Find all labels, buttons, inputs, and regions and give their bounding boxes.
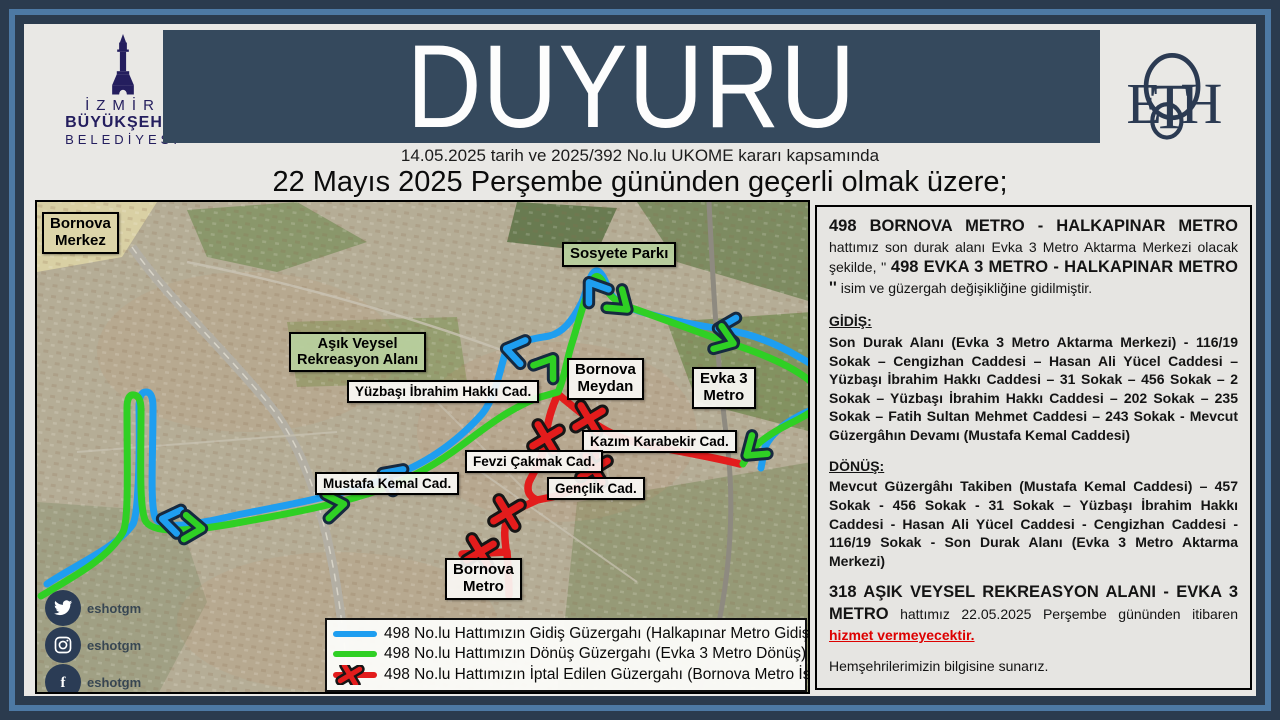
map-label-evka3-metro: Evka 3 Metro [692, 367, 756, 409]
line-318-text: hattımız 22.05.2025 Perşembe gününden it… [889, 606, 1238, 622]
line-498-old-name: 498 BORNOVA METRO - HALKAPINAR METRO [829, 217, 1238, 235]
map-label-bornova-metro: Bornova Metro [445, 558, 522, 600]
map-label-bornova-meydan: Bornova Meydan [567, 358, 644, 400]
clock-tower-icon [97, 34, 149, 96]
social-instagram[interactable]: eshotgm [45, 627, 141, 663]
decision-date-line: 14.05.2025 tarih ve 2025/392 No.lu UKOME… [24, 146, 1256, 166]
announcement-text-panel: 498 BORNOVA METRO - HALKAPINAR METRO hat… [815, 205, 1252, 690]
twitter-handle: eshotgm [87, 601, 141, 616]
svg-text:T: T [1150, 71, 1189, 142]
route-change-text-2: isim ve güzergah değişikliğine gidilmişt… [837, 280, 1092, 296]
map-label-asik-veysel: Aşık Veysel Rekreasyon Alanı [289, 332, 426, 372]
closing-line: Hemşehrilerimizin bilgisine sunarız. [829, 657, 1238, 676]
map-label-mustafa-kemal: Mustafa Kemal Cad. [315, 472, 459, 495]
map-label-sosyete-parki: Sosyete Parkı [562, 242, 676, 267]
instagram-handle: eshotgm [87, 638, 141, 653]
service-discontinued-warning: hizmet vermeyecektir. [829, 627, 975, 643]
legend-row-gidis: 498 No.lu Hattımızın Gidiş Güzergahı (Ha… [333, 625, 799, 643]
announcement-poster: İZMİR BÜYÜKŞEHİR BELEDİYESİ DUYURU E H T… [0, 0, 1280, 720]
route-map: Bornova Merkez Sosyete Parkı Aşık Veysel… [35, 200, 810, 694]
legend-row-iptal: 498 No.lu Hattımızın İptal Edilen Güzerg… [333, 665, 799, 685]
instagram-icon[interactable] [45, 627, 81, 663]
legend-iptal-line-swatch [333, 665, 377, 685]
eshot-monogram-icon: E H T [1118, 46, 1222, 150]
announcement-title-bar: DUYURU [163, 30, 1100, 143]
effective-date-subtitle: 22 Mayıs 2025 Perşembe gününden geçerli … [24, 166, 1256, 199]
donus-route-description: Mevcut Güzergâhı Takiben (Mustafa Kemal … [829, 477, 1238, 570]
facebook-handle: eshotgm [87, 675, 141, 690]
legend-row-donus: 498 No.lu Hattımızın Dönüş Güzergahı (Ev… [333, 645, 799, 663]
legend-donus-line-swatch [333, 646, 377, 662]
line-318-paragraph: 318 AŞIK VEYSEL REKREASYON ALANI - EVKA … [829, 582, 1238, 644]
legend-donus-label: 498 No.lu Hattımızın Dönüş Güzergahı (Ev… [384, 645, 806, 663]
content-card: İZMİR BÜYÜKŞEHİR BELEDİYESİ DUYURU E H T… [24, 24, 1256, 696]
facebook-icon[interactable]: f [45, 664, 81, 694]
legend-iptal-label: 498 No.lu Hattımızın İptal Edilen Güzerg… [384, 666, 810, 684]
donus-heading: DÖNÜŞ: [829, 457, 1238, 476]
map-label-bornova-merkez: Bornova Merkez [42, 212, 119, 254]
map-label-fevzi-cakmak: Fevzi Çakmak Cad. [465, 450, 603, 473]
gidis-route-description: Son Durak Alanı (Evka 3 Metro Aktarma Me… [829, 333, 1238, 445]
social-twitter[interactable]: eshotgm [45, 590, 141, 626]
route-change-paragraph: 498 BORNOVA METRO - HALKAPINAR METRO hat… [829, 216, 1238, 300]
page-title: DUYURU [407, 28, 857, 146]
map-label-kazim-karabekir: Kazım Karabekir Cad. [582, 430, 737, 453]
map-legend: 498 No.lu Hattımızın Gidiş Güzergahı (Ha… [325, 618, 807, 692]
twitter-icon[interactable] [45, 590, 81, 626]
legend-gidis-line-swatch [333, 626, 377, 642]
eshot-logo: E H T [1118, 46, 1222, 150]
gidis-heading: GİDİŞ: [829, 312, 1238, 331]
map-label-genclik: Gençlik Cad. [547, 477, 645, 500]
social-facebook[interactable]: f eshotgm [45, 664, 141, 694]
svg-text:f: f [61, 675, 67, 691]
legend-gidis-label: 498 No.lu Hattımızın Gidiş Güzergahı (Ha… [384, 625, 810, 643]
map-label-yuzbasi-ibrahim-hakki: Yüzbaşı İbrahim Hakkı Cad. [347, 380, 539, 403]
